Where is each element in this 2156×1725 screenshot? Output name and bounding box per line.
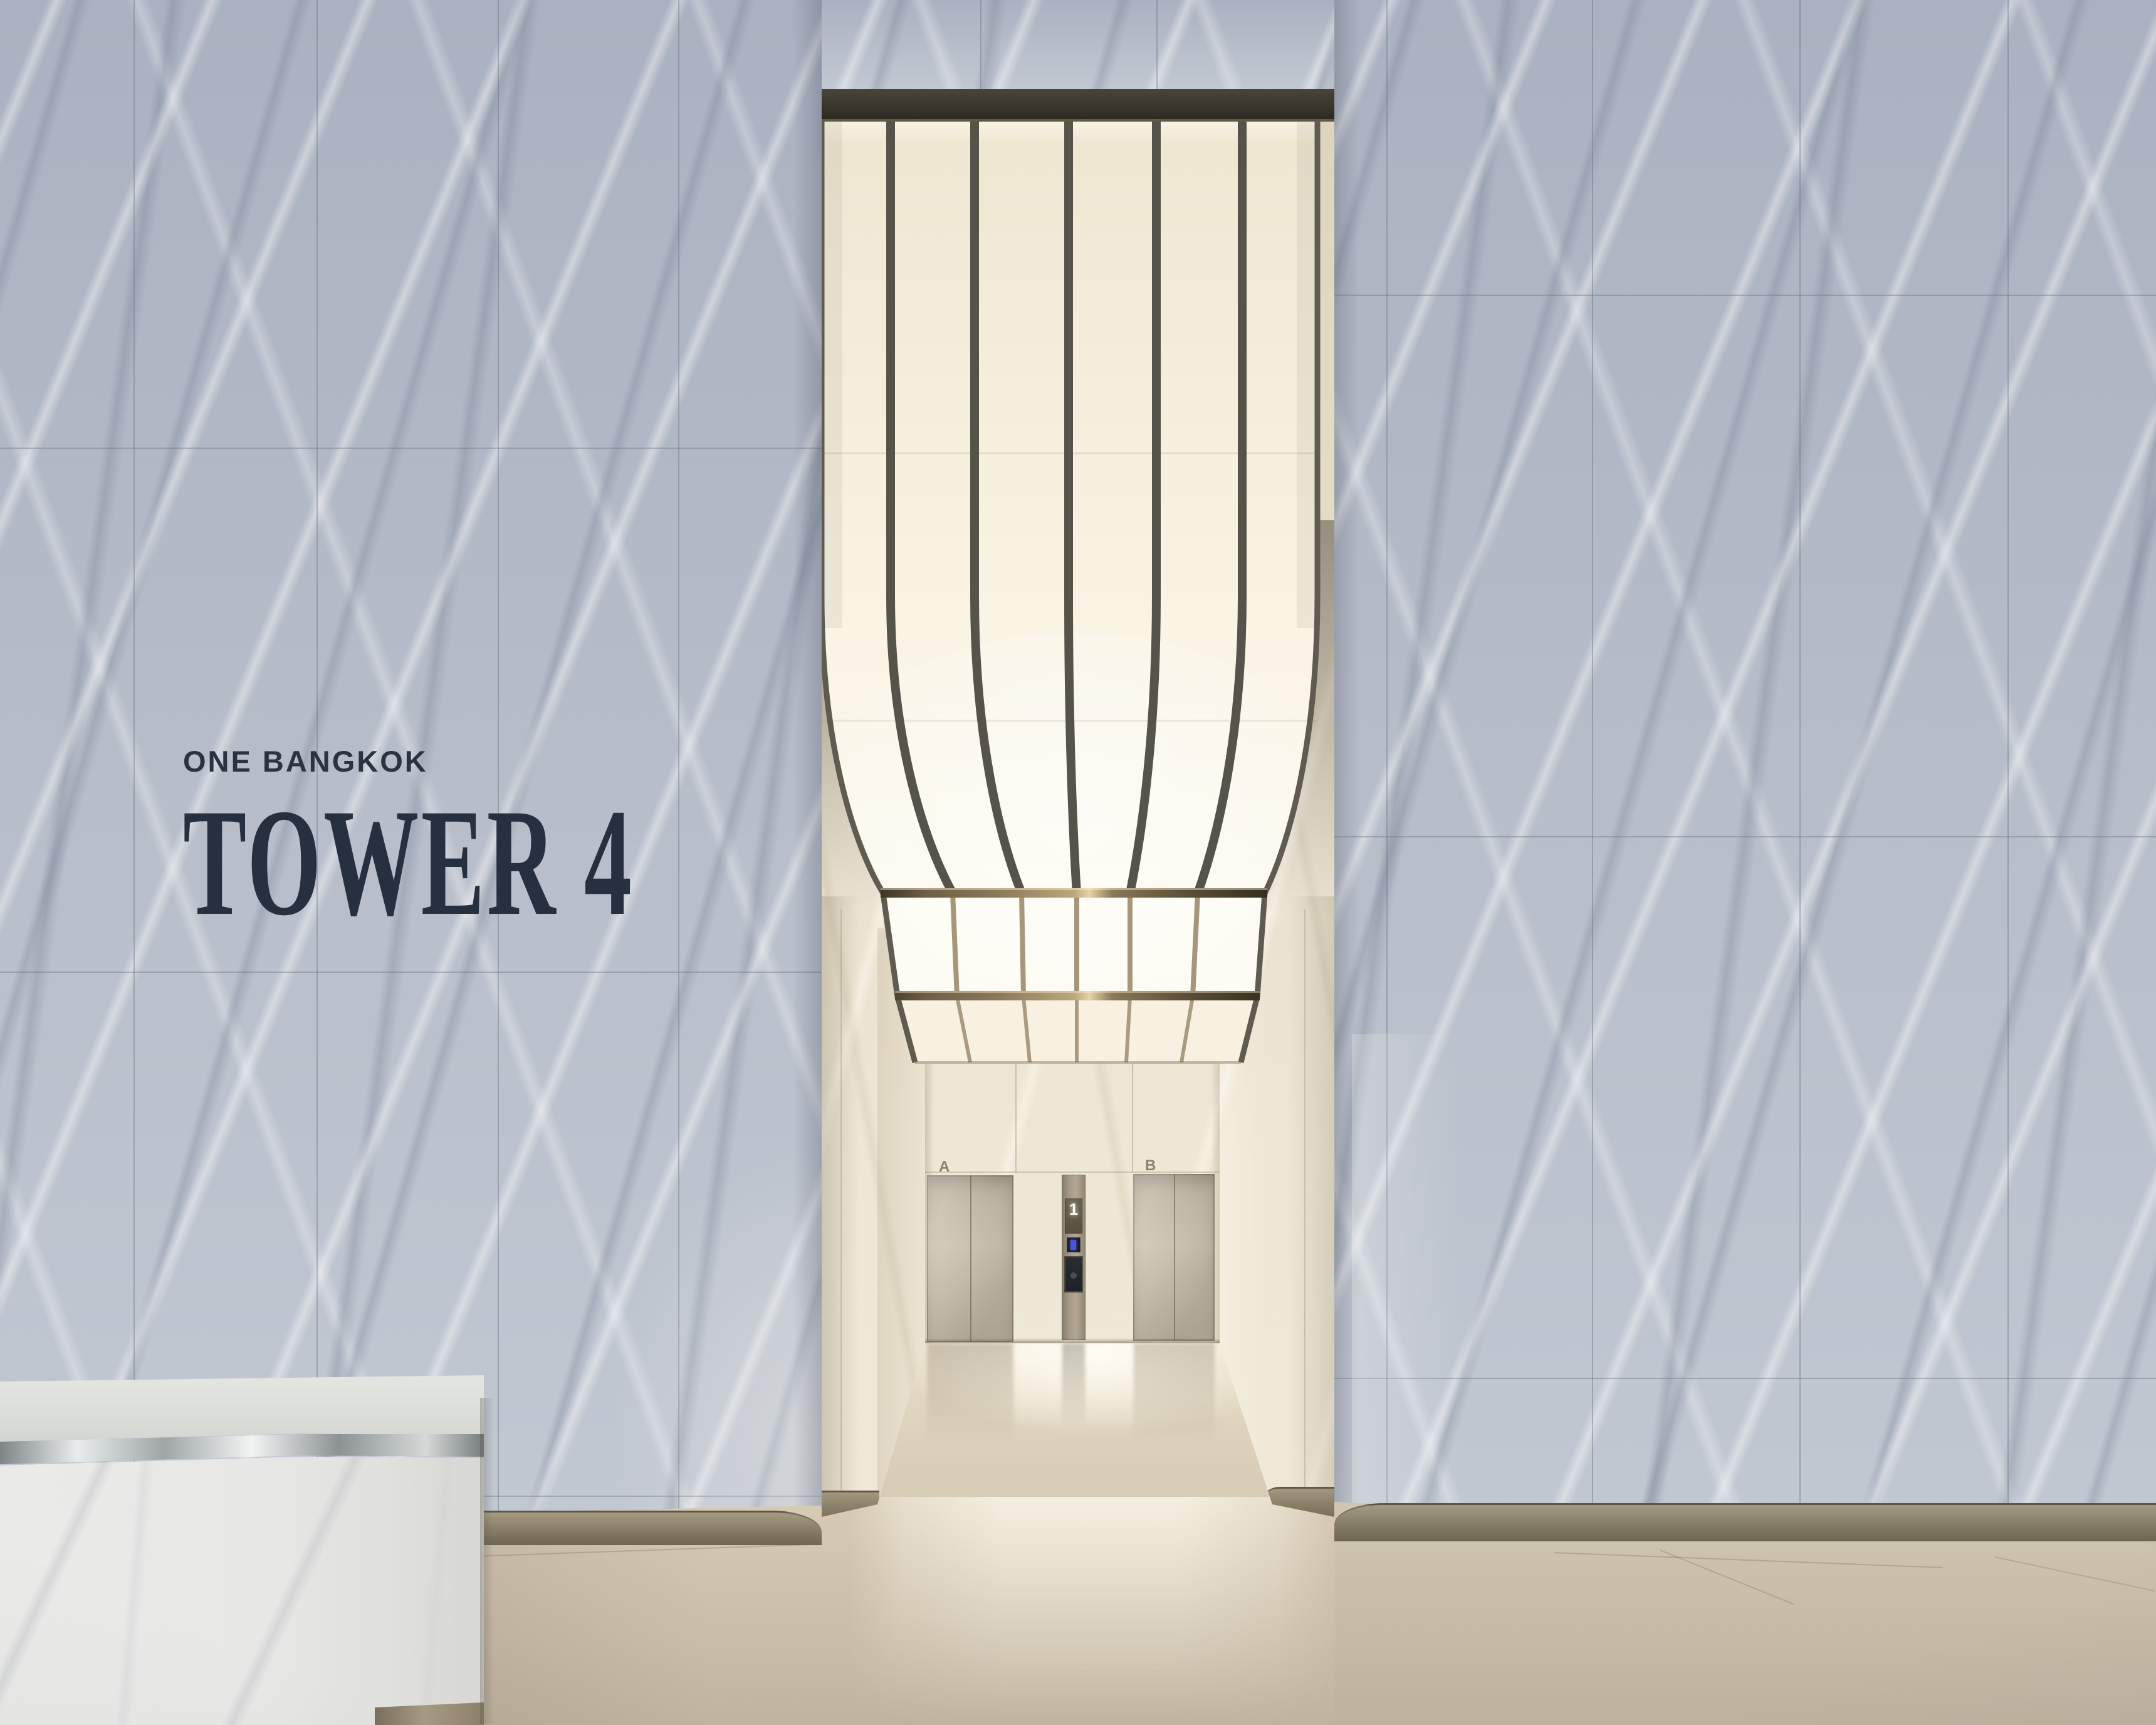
signage-project-name: ONE BANGKOK bbox=[183, 746, 911, 777]
elevator-a-door bbox=[927, 1175, 1013, 1342]
floor-indicator-value: 1 bbox=[1069, 1198, 1078, 1234]
portal-header-wall bbox=[822, 0, 1334, 89]
stone-joint bbox=[0, 448, 822, 449]
destination-panel: 1 bbox=[1062, 1175, 1086, 1340]
floor-reflection-door-b bbox=[1133, 1343, 1215, 1444]
stone-joint bbox=[133, 0, 135, 1511]
wall-base-shadow bbox=[925, 1338, 1220, 1343]
card-reader[interactable] bbox=[1064, 1256, 1083, 1292]
desk-counter-top bbox=[0, 1373, 484, 1443]
elevator-door-seam bbox=[1174, 1174, 1175, 1341]
stone-joint bbox=[1156, 0, 1158, 89]
marble-wall-right bbox=[1334, 0, 2156, 1543]
desk-edge-shadow bbox=[480, 1398, 494, 1724]
elevator-door-seam bbox=[970, 1175, 971, 1342]
signage-tower-name: TOWER 4 bbox=[183, 795, 634, 930]
stone-joint bbox=[2007, 0, 2009, 1539]
stone-joint bbox=[1334, 836, 2156, 837]
lobby-photo: A B 1 bbox=[0, 0, 2156, 1725]
elevator-b-label: B bbox=[1145, 1157, 1156, 1175]
stone-joint bbox=[925, 1172, 1220, 1173]
stone-joint bbox=[1334, 295, 2156, 296]
floor-reflection-wall bbox=[1086, 1343, 1133, 1431]
baseboard-right bbox=[1334, 1503, 2156, 1541]
stone-joint bbox=[1386, 0, 1388, 1517]
floor-indicator: 1 bbox=[1065, 1198, 1082, 1234]
elevator-a-label: A bbox=[939, 1158, 950, 1176]
stone-joint bbox=[1592, 0, 1593, 1523]
curtain-top-frame bbox=[805, 88, 1334, 122]
stone-joint bbox=[1334, 1378, 2156, 1379]
tower-signage: ONE BANGKOK TOWER 4 bbox=[183, 746, 911, 930]
elevator-b-door bbox=[1133, 1174, 1215, 1341]
floor-reflection-door-a bbox=[927, 1343, 1013, 1444]
panel-screen[interactable] bbox=[1067, 1237, 1081, 1252]
reception-desk bbox=[0, 1373, 526, 1725]
desk-front-panel bbox=[0, 1457, 484, 1725]
light-curtain bbox=[802, 83, 1341, 1108]
floor-portal-reflection bbox=[846, 1497, 1335, 1725]
floor-reflection-panel bbox=[1062, 1343, 1086, 1425]
stone-joint bbox=[1799, 0, 1801, 1533]
floor-reflection-wall bbox=[1015, 1343, 1062, 1431]
stone-joint bbox=[980, 0, 981, 89]
